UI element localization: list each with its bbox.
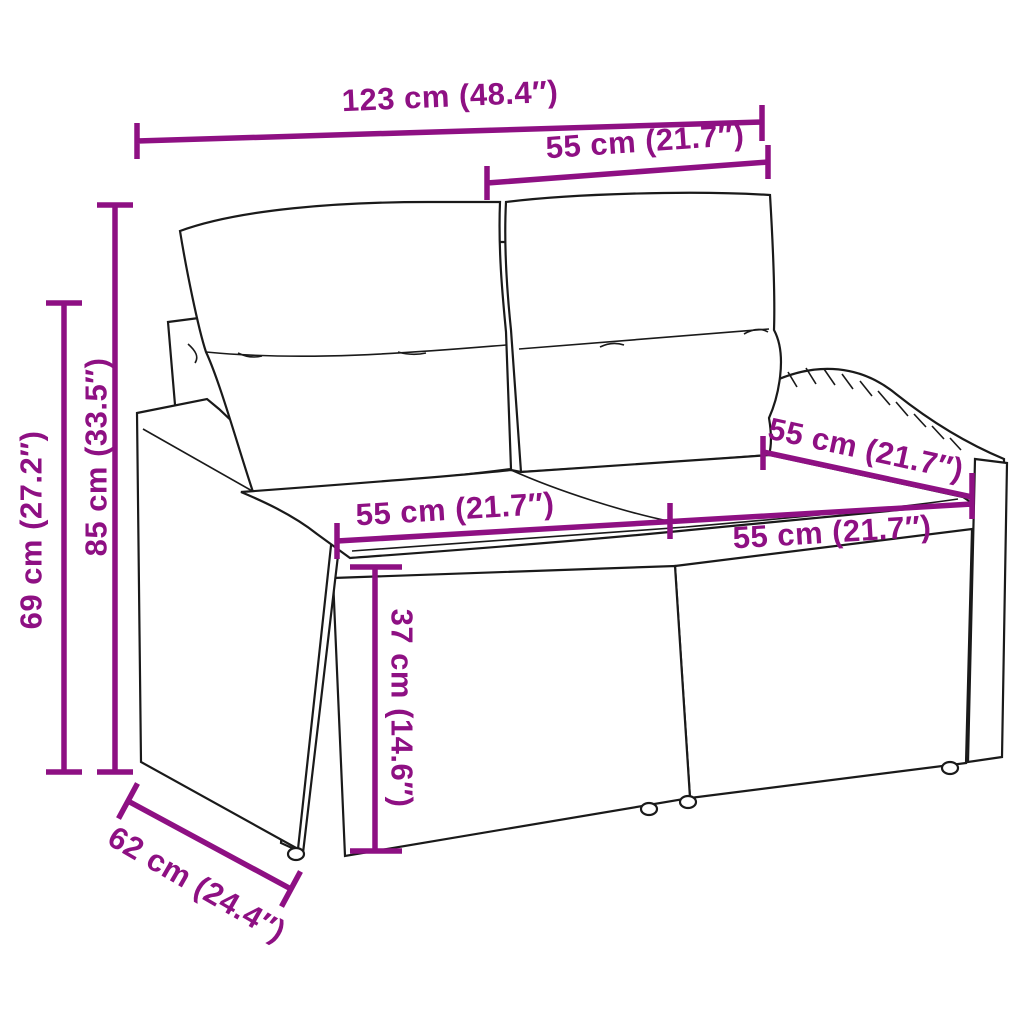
diagram-stage: 123 cm (48.4″) 55 cm (21.7″) 85 cm (33.5… xyxy=(0,0,1024,1024)
dimension-line xyxy=(46,303,82,772)
dimension-label-overall-width: 123 cm (48.4″) xyxy=(341,74,559,118)
foot xyxy=(641,803,657,815)
foot xyxy=(680,796,696,808)
dimension-label-overall-height: 85 cm (33.5″) xyxy=(79,358,114,557)
dimension-label-seat-height: 37 cm (14.6″) xyxy=(385,609,420,808)
dimension-armrest-height: 69 cm (27.2″) xyxy=(14,303,83,772)
back-cushion-right xyxy=(505,193,781,472)
dimension-overall-height: 85 cm (33.5″) xyxy=(79,205,134,772)
front-panel-right xyxy=(675,529,972,798)
dimension-diagram: 123 cm (48.4″) 55 cm (21.7″) 85 cm (33.5… xyxy=(0,0,1024,1024)
foot xyxy=(942,762,958,774)
foot xyxy=(288,848,304,860)
dimension-label-armrest-height: 69 cm (27.2″) xyxy=(14,431,49,630)
dimension-label-backrest-width: 55 cm (21.7″) xyxy=(545,117,746,166)
